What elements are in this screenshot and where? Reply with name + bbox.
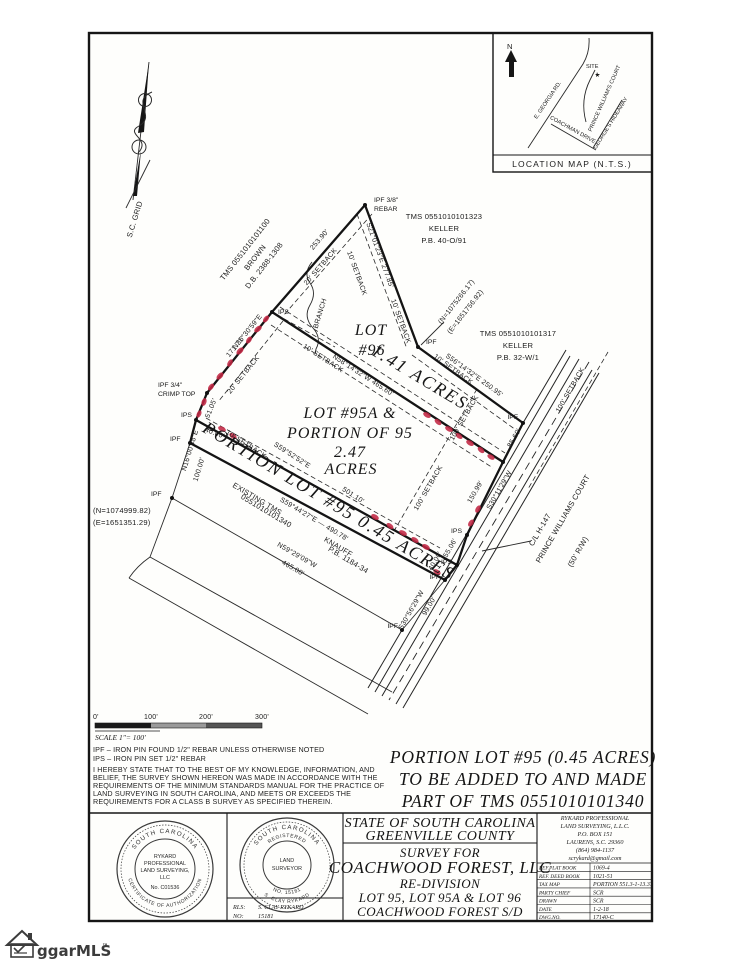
party-chief-label: PARTY CHIEF <box>538 890 571 896</box>
adjoiner-keller2-name: KELLER <box>503 341 534 350</box>
firm-addr-1: P.O. BOX 151 <box>577 831 613 838</box>
ref-deed-book-value: 1021-51 <box>593 874 613 880</box>
scale-tick-100: 100' <box>144 714 158 721</box>
rls-no-value: 15181 <box>258 913 273 920</box>
ref-plat-book-value: 1069-4 <box>593 866 610 872</box>
title-client: COACHWOOD FOREST, LLC <box>329 858 551 877</box>
dwg-no-value: 17140-C <box>593 915 614 921</box>
location-map-caption: LOCATION MAP (N.T.S.) <box>512 159 632 169</box>
rls-no-label: NO: <box>232 913 244 920</box>
firm-name-2: LAND SURVEYING, L.L.C. <box>560 823 630 830</box>
drawn-label: DRAWN <box>538 899 557 905</box>
title-subdivision: COACHWOOD FOREST S/D <box>357 904 523 919</box>
firm-name-1: RYKARD PROFESSIONAL <box>560 815 630 822</box>
scale-tick-200: 200' <box>199 714 213 721</box>
title-lots: LOT 95, LOT 95A & LOT 96 <box>358 890 521 905</box>
watermark-text: ggarMLS <box>37 942 111 960</box>
firm-phone: (864) 984-1137 <box>576 847 615 854</box>
seal1-center-4: LLC <box>160 875 170 881</box>
tax-map-label: TAX MAP <box>539 882 561 888</box>
statement-line-1: PORTION LOT #95 (0.45 ACRES) <box>389 747 656 767</box>
firm-addr-2: LAURENS, S.C. 29360 <box>566 839 625 846</box>
note-ips: IPS – IRON PIN SET 1/2" REBAR <box>93 754 206 763</box>
sw-coordinate-n: (N=1074999.82) <box>93 506 151 515</box>
ipf-label: IPF <box>507 414 518 421</box>
lot96-name: LOT <box>354 322 387 339</box>
sw-coordinate-e: (E=1651351.29) <box>93 518 151 527</box>
lot95a-line4: ACRES <box>324 461 378 478</box>
ips-label: IPS <box>278 309 289 316</box>
dwg-no-label: DWG.NO. <box>538 915 561 921</box>
ref-plat-book-label: REF.PLAT BOOK <box>538 866 577 872</box>
rls-name: S. CLAY RYKARD <box>258 904 304 911</box>
date-value: 1-2-18 <box>593 907 609 913</box>
ipf-34-crimp-label: CRIMP TOP <box>158 391 196 398</box>
note-ipf: IPF – IRON PIN FOUND 1/2" REBAR UNLESS O… <box>93 745 324 754</box>
seal2-center-1: LAND <box>280 858 294 864</box>
watermark-tm: ™ <box>102 943 108 950</box>
plat-canvas: S.C. GRID LOCATION MAP (N.T.S.) N E. GEO… <box>0 0 741 960</box>
survey-plat-sheet: S.C. GRID LOCATION MAP (N.T.S.) N E. GEO… <box>0 0 741 960</box>
ipf-label: IPF <box>426 339 437 346</box>
re-division-statement: PORTION LOT #95 (0.45 ACRES) TO BE ADDED… <box>389 747 656 811</box>
firm-email: scrykard@gmail.com <box>568 855 622 862</box>
ref-deed-book-label: REF. DEED BOOK <box>538 874 580 880</box>
scale-tick-300: 300' <box>255 714 269 721</box>
map-site-label: SITE <box>586 64 599 70</box>
seal1-center-1: RYKARD <box>154 854 176 860</box>
lot95a-line1: LOT #95A & <box>303 405 397 422</box>
scale-tick-0: 0' <box>93 714 99 721</box>
seal1-center-5: No. C01536 <box>151 885 180 891</box>
ipf-38-label: IPF 3/8" <box>374 197 399 204</box>
adjoiner-keller1-tms: TMS 0551010101323 <box>406 212 482 221</box>
cert-line-5: REQUIREMENTS FOR A CLASS B SURVEY AS SPE… <box>93 797 333 806</box>
ipf-label: IPF <box>170 436 181 443</box>
title-county: GREENVILLE COUNTY <box>366 829 517 844</box>
ipf-34-label: IPF 3/4" <box>158 382 183 389</box>
ips-label: IPS <box>451 528 462 535</box>
ipf-label: IPF <box>387 623 398 630</box>
house-icon <box>7 931 37 957</box>
map-north-label: N <box>507 42 513 51</box>
watermark-logo: ggarMLS ™ <box>7 931 111 960</box>
ipf-label: IPF <box>151 491 162 498</box>
adjoiner-keller1-name: KELLER <box>429 224 460 233</box>
seal1-center-3: LAND SURVEYING, <box>140 868 190 874</box>
drawn-value: SCR <box>593 899 604 905</box>
lot95a-line3: 2.47 <box>334 444 366 461</box>
lot95a-line2: PORTION OF 95 <box>286 425 413 442</box>
seal1-center-2: PROFESSIONAL <box>144 861 186 867</box>
adjoiner-keller2-pb: P.B. 32-W/1 <box>497 353 539 362</box>
scale-label: SCALE 1"= 100' <box>95 733 146 742</box>
statement-line-2: TO BE ADDED TO AND MADE <box>399 769 647 789</box>
party-chief-value: SCR <box>593 890 604 896</box>
ipf-38-rebar-label: REBAR <box>374 206 398 213</box>
ips-label: IPS <box>181 412 192 419</box>
adjoiner-keller1-pb: P.B. 40-O/91 <box>421 236 466 245</box>
tax-map-value: PORTION 551.3-1-13.37 <box>592 882 654 888</box>
seal2-center-2: SURVEYOR <box>272 866 302 872</box>
statement-line-3: PART OF TMS 0551010101340 <box>401 791 645 811</box>
rls-label: RLS: <box>232 904 245 911</box>
title-subtitle: RE-DIVISION <box>399 876 481 891</box>
date-label: DATE <box>538 907 553 913</box>
adjoiner-keller2-tms: TMS 0551010101317 <box>480 329 556 338</box>
